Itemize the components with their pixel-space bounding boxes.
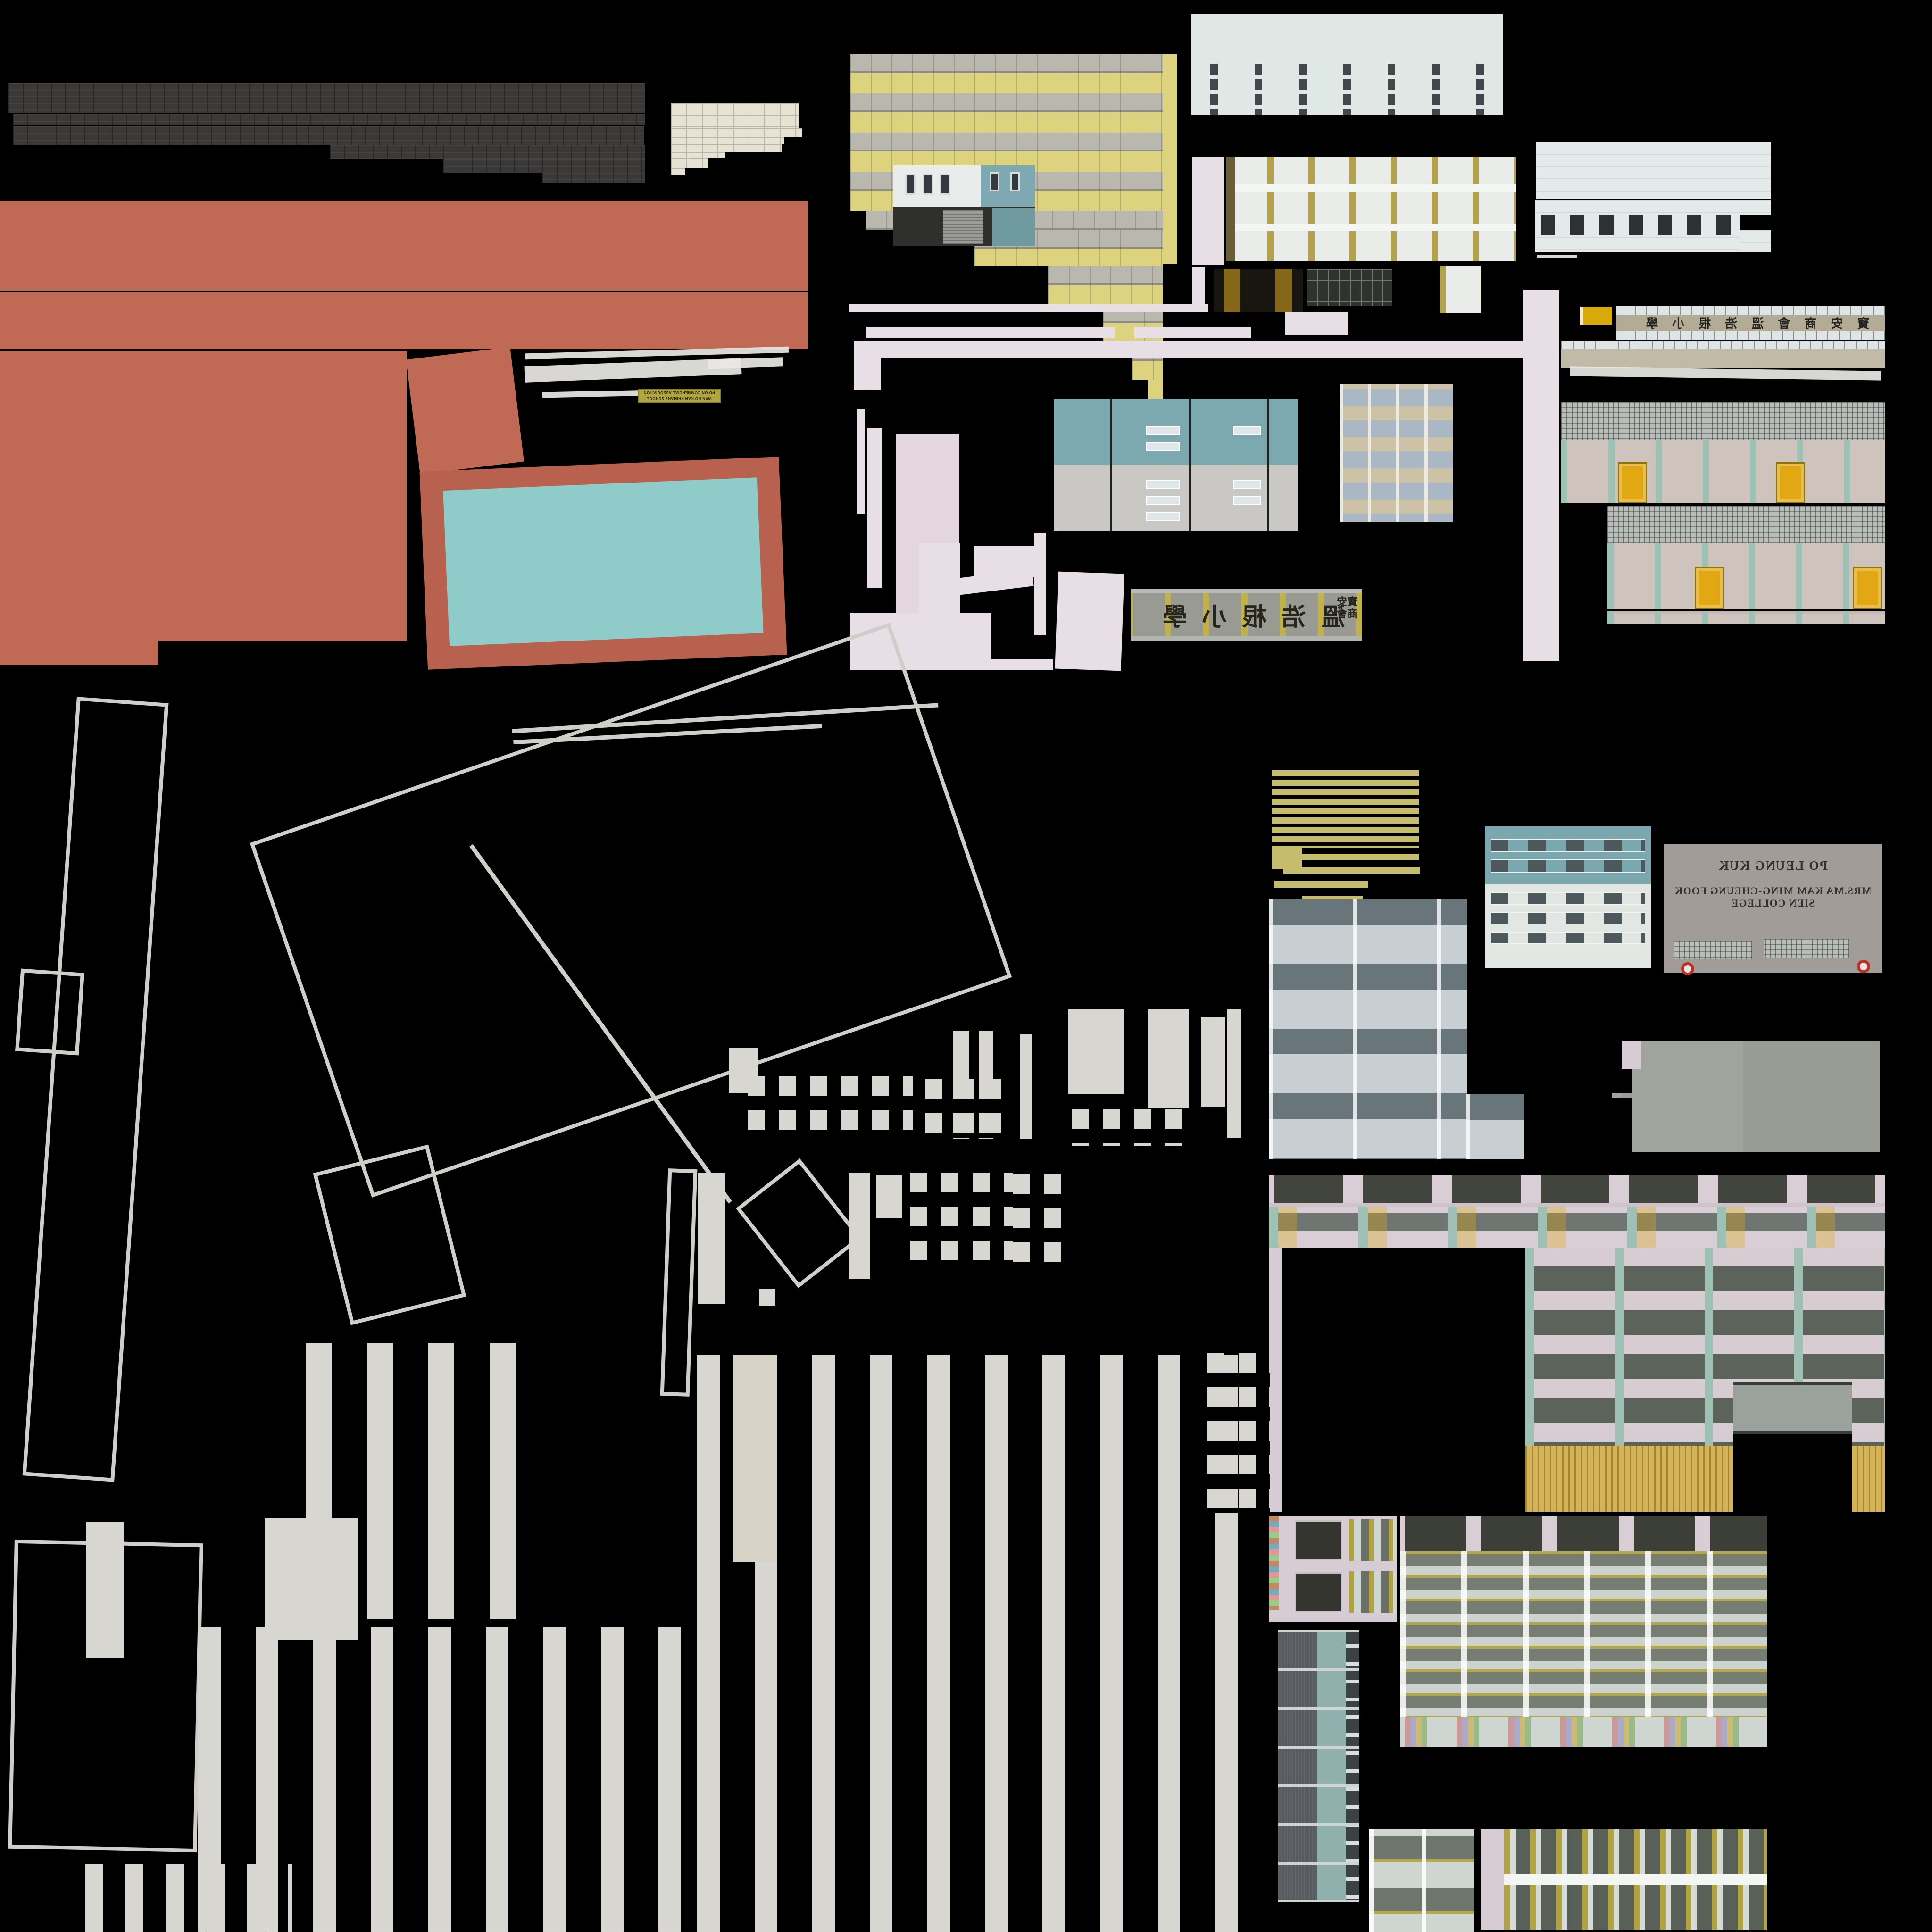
olive-block — [1272, 847, 1302, 869]
yellow-door — [1618, 462, 1647, 503]
window-row — [1491, 859, 1645, 873]
uv-square-grid — [1013, 1174, 1073, 1265]
panel-window — [1233, 426, 1261, 435]
panel-window — [1233, 496, 1261, 505]
balcony-rows-facade — [1269, 899, 1467, 1159]
pink-uv-column — [1523, 290, 1559, 661]
blue-white-facade — [1485, 826, 1651, 968]
photo-window — [905, 174, 916, 195]
teal-pier-facade-row — [1607, 506, 1885, 609]
brick-strip — [13, 126, 308, 145]
beige-wall — [1561, 341, 1885, 368]
facade-piece-c — [1481, 1829, 1767, 1930]
floor-band — [1226, 224, 1516, 231]
pink-window-piece — [1269, 1516, 1397, 1622]
pink-uv-strip — [1285, 312, 1348, 335]
pink-uv-strip — [849, 304, 1208, 312]
brick-strip — [542, 173, 645, 183]
panel-window — [1146, 480, 1180, 489]
uv-island — [1227, 1009, 1241, 1138]
slab-notch — [1740, 200, 1771, 215]
kindergarten-art-band — [1400, 1717, 1767, 1747]
college-sign-wall-line: PO LEUNG KUK — [1664, 858, 1882, 873]
window-column-slab — [1191, 64, 1503, 115]
pink-notch — [1622, 1041, 1641, 1069]
photo-window — [923, 174, 933, 195]
white-sliver — [708, 357, 783, 369]
dark-window — [1295, 1520, 1342, 1560]
panel-divider — [1267, 399, 1269, 531]
window-band — [1616, 306, 1885, 315]
salmon-roof — [0, 591, 158, 665]
pink-uv-strip — [867, 428, 882, 588]
panel-window — [1146, 442, 1180, 451]
pink-building-left-column — [1269, 1248, 1282, 1512]
cream-tile-strip — [671, 152, 725, 158]
edge-column — [1226, 157, 1235, 261]
olive-strip-cluster — [1272, 770, 1419, 848]
cream-tile-strip — [671, 168, 685, 175]
cream-tile-strip — [671, 158, 708, 168]
char-small-panel-label: 寶安商會 — [1332, 596, 1362, 621]
brick-strip — [443, 159, 645, 173]
school-sign-board-line: PO ON COMMERCIAL ASSOCIATION — [639, 390, 720, 395]
window-row — [1491, 912, 1645, 924]
pink-uv-strip — [854, 341, 1558, 358]
pink-uv-block — [1055, 572, 1124, 671]
panel-window — [1233, 480, 1261, 489]
floor-band — [1269, 1207, 1885, 1248]
window-row — [1491, 892, 1645, 905]
char-small-panel: 寶安商會 — [1332, 593, 1362, 624]
pink-uv-strip — [1034, 533, 1046, 635]
window-grid-band — [1561, 402, 1885, 440]
window-row — [1491, 839, 1645, 852]
olive-window-band — [1349, 1519, 1396, 1561]
uv-island — [698, 1173, 725, 1304]
dark-window — [1295, 1572, 1342, 1612]
photo-window — [1010, 172, 1020, 191]
clerestory-row — [1400, 1516, 1767, 1551]
texture-atlas: PO ON COMMERCIAL ASSOCIATIONWAN HO KAN P… — [0, 0, 1932, 1932]
uv-island — [86, 1522, 124, 1658]
cream-tile-strip — [671, 128, 802, 137]
floor-lines — [1278, 1630, 1359, 1902]
panel-window — [1146, 426, 1180, 435]
photo-window — [990, 172, 999, 191]
panel-divider — [1189, 399, 1191, 531]
brick-strip — [13, 114, 645, 125]
salmon-roof — [0, 292, 808, 349]
pink-uv-strip — [1192, 157, 1224, 265]
uv-outline — [15, 969, 84, 1056]
uv-square-grid — [910, 1173, 1013, 1267]
slab-notch — [1740, 230, 1771, 252]
pool-water — [443, 477, 763, 646]
olive-window-band — [1349, 1571, 1396, 1613]
uv-island — [1020, 1034, 1032, 1139]
classroom-floors — [1400, 1551, 1767, 1717]
floor-band — [1504, 1874, 1767, 1885]
pink-building-top — [1269, 1175, 1885, 1248]
entrance-void — [1733, 1434, 1852, 1512]
school-nameband: 寶安商會溫浩根小學 — [1616, 306, 1885, 340]
no-parking-sign — [1681, 962, 1694, 975]
pink-uv-strip — [854, 358, 881, 390]
olive-strip — [1283, 867, 1420, 874]
window-strip — [1764, 939, 1849, 958]
brick-strip — [8, 83, 645, 113]
gold-pilaster-piece — [1440, 266, 1481, 313]
yellow-door — [1776, 462, 1805, 503]
uv-square-grid — [1072, 1109, 1190, 1146]
cream-tile-strip — [671, 137, 784, 144]
char-panel-wall-label: 溫浩根小學 — [1148, 597, 1346, 633]
school-sign-board: PO ON COMMERCIAL ASSOCIATIONWAN HO KAN P… — [638, 389, 721, 403]
window-row — [1541, 215, 1734, 235]
uv-island — [759, 1289, 775, 1306]
brick-strip — [308, 126, 644, 145]
gold-pilaster-facade — [1226, 157, 1516, 261]
pink-uv-strip — [958, 569, 1033, 595]
vent-grid-texture — [1307, 269, 1392, 306]
white-sliver — [1570, 366, 1881, 380]
tan-window-facade — [1340, 384, 1453, 522]
school-sign-board-line: WAN HO KAN PRIMARY SCHOOL — [639, 396, 720, 400]
white-sliver — [1537, 255, 1577, 258]
uv-island — [1068, 1009, 1124, 1094]
blue-gray-panel — [1054, 399, 1298, 531]
char-panel-wall: 溫浩根小學寶安商會 — [1131, 589, 1362, 641]
window-band — [1616, 331, 1885, 340]
photo-teal-wall — [981, 165, 1035, 207]
mint-slab — [1191, 14, 1503, 64]
uv-square-grid — [1207, 1353, 1270, 1513]
balcony-rows-facade — [1466, 1094, 1524, 1159]
uv-island — [1201, 1017, 1225, 1107]
photo-shutter — [943, 210, 983, 244]
teal-pier-facade-row — [1561, 402, 1885, 503]
uv-island — [849, 1173, 870, 1279]
classroom-facade — [1400, 1516, 1767, 1747]
facade-piece-b — [1369, 1829, 1474, 1932]
pool-texture — [420, 457, 787, 670]
storefront-texture — [1214, 269, 1303, 312]
uv-square-grid — [925, 1079, 1001, 1138]
pink-uv-strip — [857, 409, 865, 514]
salmon-roof — [406, 347, 524, 474]
olive-strip — [1301, 854, 1419, 860]
cream-tile-strip — [671, 144, 782, 152]
panel-window — [1146, 496, 1180, 505]
panel-window — [1146, 512, 1180, 521]
gold-nameboard — [1580, 307, 1612, 325]
photo-teal-lower — [992, 208, 1035, 246]
service-tower — [1278, 1630, 1359, 1902]
uv-island — [876, 1175, 902, 1218]
cream-tile-strip — [671, 103, 799, 128]
art-strip — [1269, 1516, 1279, 1610]
yellow-door — [1853, 567, 1882, 609]
yellow-facade-strip — [1163, 54, 1177, 264]
college-sign-wall-line: MRS.MA KAM MING-CHEUNG FOOK SIEN COLLEGE — [1664, 885, 1882, 909]
panel-divider — [1110, 399, 1112, 531]
long-roof-slab — [1536, 142, 1771, 199]
window-row — [1491, 932, 1645, 944]
photo-window — [940, 174, 950, 195]
floor-band — [1226, 184, 1516, 192]
entrance-photo-texture — [893, 165, 1035, 246]
window-row-slab — [1535, 200, 1740, 252]
olive-strip — [1274, 881, 1368, 888]
uv-outline — [660, 1168, 698, 1397]
pink-part — [1481, 1829, 1504, 1930]
gray-slab-tail — [1612, 1093, 1632, 1098]
college-sign-wall: PO LEUNG KUKMRS.MA KAM MING-CHEUNG FOOK … — [1664, 844, 1882, 973]
gray-slab — [1632, 1041, 1880, 1152]
teal-pier-facade-sliver — [1607, 611, 1885, 624]
brick-strip — [330, 145, 645, 159]
window-strip — [1674, 941, 1752, 959]
uv-square-grid — [748, 1076, 913, 1141]
teal-band — [1485, 826, 1651, 884]
salmon-roof — [0, 201, 808, 291]
uv-outline — [736, 1158, 862, 1288]
uv-outline — [23, 697, 169, 1482]
window-band — [1561, 341, 1885, 349]
pink-uv-strip — [1134, 327, 1251, 338]
uv-island — [1148, 1009, 1189, 1108]
uv-strip-field — [697, 1355, 1269, 1932]
pink-uv-strip — [866, 327, 1115, 338]
clerestory-row — [1269, 1175, 1885, 1207]
uv-strip-field — [85, 1864, 292, 1932]
window-grid-band — [1607, 506, 1885, 543]
entrance-canopy — [1733, 1382, 1852, 1434]
yellow-facade-rows — [1048, 266, 1163, 304]
no-parking-sign — [1857, 960, 1870, 973]
uv-island — [265, 1518, 358, 1640]
school-nameband-label: 寶安商會溫浩根小學 — [1632, 314, 1870, 332]
uv-island — [733, 1355, 777, 1562]
yellow-door — [1695, 567, 1724, 609]
